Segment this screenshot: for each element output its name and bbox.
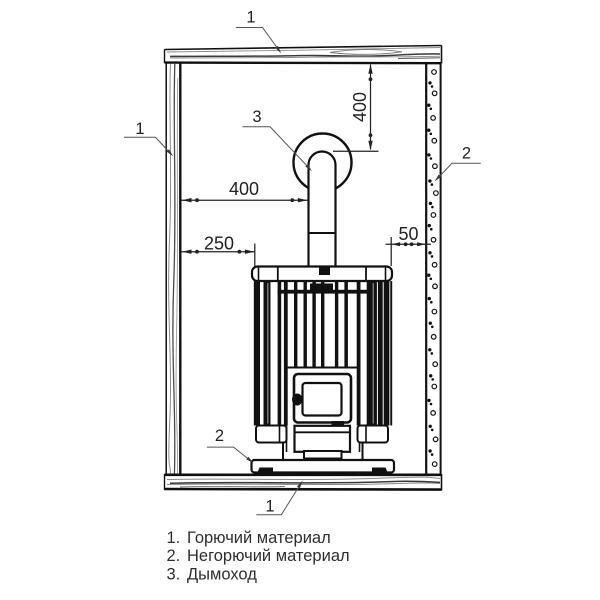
svg-text:1.Горючий материал: 1.Горючий материал <box>167 529 331 547</box>
svg-text:50: 50 <box>398 224 418 244</box>
svg-text:3.Дымоход: 3.Дымоход <box>167 566 258 584</box>
svg-text:400: 400 <box>350 92 370 122</box>
svg-text:2: 2 <box>462 145 471 163</box>
svg-text:2.Негорючий материал: 2.Негорючий материал <box>167 547 350 565</box>
svg-text:250: 250 <box>204 234 234 254</box>
svg-text:1: 1 <box>265 498 274 516</box>
svg-text:400: 400 <box>229 179 259 199</box>
svg-text:1: 1 <box>135 120 144 138</box>
svg-text:2: 2 <box>215 427 224 445</box>
svg-text:1: 1 <box>246 9 255 27</box>
svg-text:3: 3 <box>252 108 261 126</box>
